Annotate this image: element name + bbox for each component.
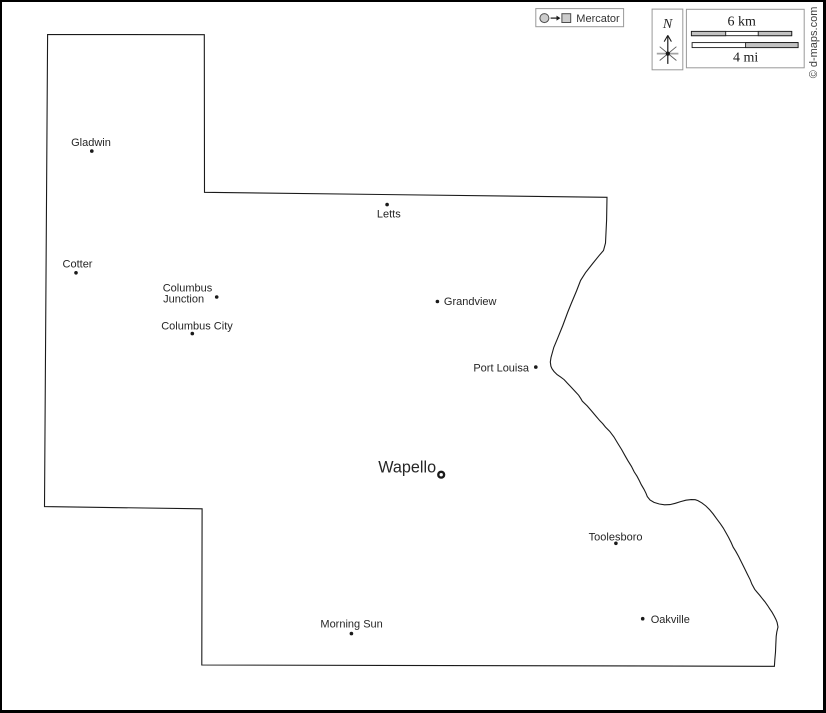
svg-text:Port Louisa: Port Louisa [473,362,530,374]
svg-text:4 mi: 4 mi [733,50,758,65]
svg-text:6 km: 6 km [728,14,757,29]
svg-text:Junction: Junction [163,294,204,306]
svg-text:Mercator: Mercator [576,13,620,25]
svg-text:Letts: Letts [377,208,401,220]
svg-text:Morning Sun: Morning Sun [320,619,382,631]
svg-text:© d-maps.com: © d-maps.com [808,7,820,79]
svg-text:Oakville: Oakville [651,614,690,626]
svg-text:Cotter: Cotter [63,259,93,271]
svg-text:N: N [662,17,673,32]
svg-text:Toolesboro: Toolesboro [589,531,643,543]
svg-text:Columbus City: Columbus City [161,321,233,333]
svg-text:Wapello: Wapello [378,458,436,476]
svg-text:Gladwin: Gladwin [71,137,111,149]
svg-text:Grandview: Grandview [444,296,497,308]
